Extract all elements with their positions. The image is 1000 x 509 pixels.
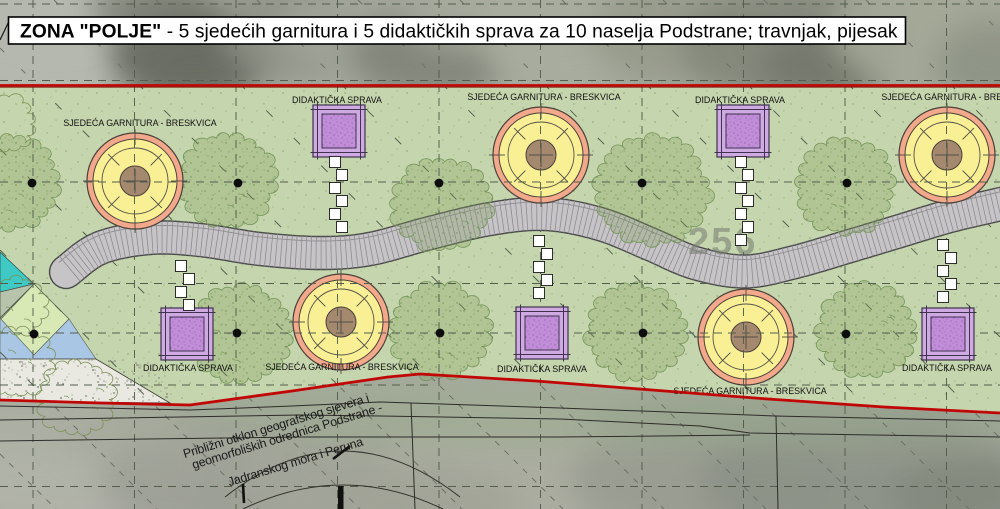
svg-text:SJEDEĆA GARNITURA - BRESKVICA: SJEDEĆA GARNITURA - BRESKVICA xyxy=(63,118,216,128)
svg-text:SJEDEĆA GARNITURA - BRESKVICA: SJEDEĆA GARNITURA - BRESKVICA xyxy=(881,92,1000,102)
svg-text:DIDAKTIČKA SPRAVA: DIDAKTIČKA SPRAVA xyxy=(497,364,587,374)
svg-text:DIDAKTIČKA SPRAVA: DIDAKTIČKA SPRAVA xyxy=(292,95,382,105)
svg-text:DIDAKTIČKA SPRAVA: DIDAKTIČKA SPRAVA xyxy=(902,363,992,373)
svg-text:DIDAKTIČKA SPRAVA: DIDAKTIČKA SPRAVA xyxy=(143,363,233,373)
svg-text:DIDAKTIČKA SPRAVA: DIDAKTIČKA SPRAVA xyxy=(695,95,785,105)
svg-text:SJEDEĆA GARNITURA - BRESKVICA: SJEDEĆA GARNITURA - BRESKVICA xyxy=(467,92,620,102)
svg-text:SJEDEĆA GARNITURA - BRESKVICA: SJEDEĆA GARNITURA - BRESKVICA xyxy=(265,362,418,372)
svg-text:ZONA "POLJE" - 5 sjedećih garn: ZONA "POLJE" - 5 sjedećih garnitura i 5 … xyxy=(20,22,898,43)
